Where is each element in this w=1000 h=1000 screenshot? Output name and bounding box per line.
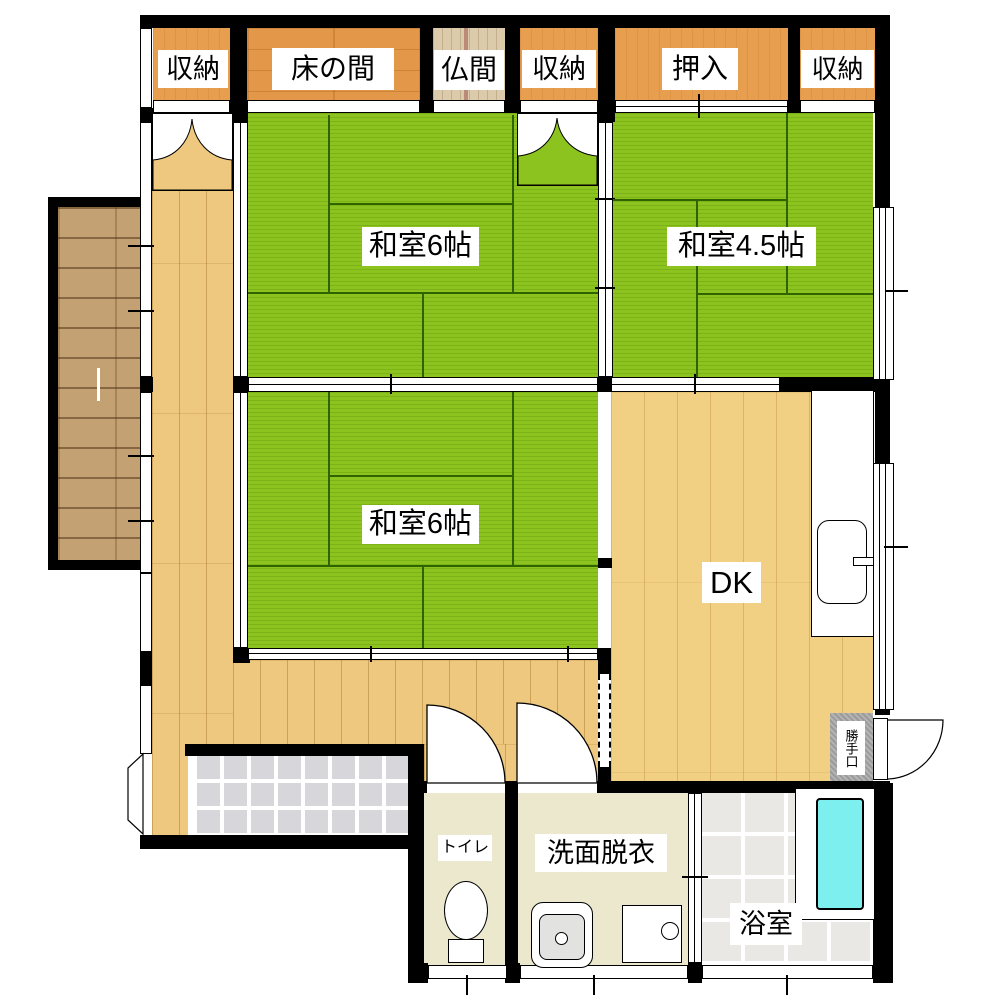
matline	[422, 292, 424, 377]
post-left-lower	[140, 652, 152, 685]
window-right-kitchen-line1	[879, 463, 880, 710]
label-washitsu45: 和室4.5帖	[667, 227, 816, 266]
shoji-tick-room3-b	[567, 646, 569, 662]
label-closet-butsuma: 仏間	[434, 50, 504, 90]
closet-track-5-line	[615, 106, 788, 107]
post-bottom-3	[688, 963, 702, 983]
genkan-tile-floor	[197, 756, 417, 835]
double-door-engawa-icon	[152, 113, 233, 191]
label-closet-shuno-2: 収納	[522, 50, 596, 88]
matline	[328, 392, 330, 567]
post-closet-3	[505, 28, 520, 113]
post-washbath-top	[688, 781, 702, 793]
bath-sliding-door-tick	[682, 876, 708, 878]
closet-track-3	[433, 100, 505, 113]
washing-machine-dial-icon	[661, 922, 679, 940]
label-toilet: トイレ	[438, 835, 492, 861]
deck-frame-top	[48, 197, 140, 207]
deck-dim-mark	[97, 368, 100, 401]
window-left-2	[140, 122, 152, 377]
wall-toilet-washroom-divider	[505, 781, 518, 973]
shoji-line-room1-left	[240, 122, 241, 377]
deck-frame-left	[48, 197, 58, 570]
post-closet-4	[598, 28, 615, 122]
post-bottom-4	[873, 963, 893, 983]
matline	[512, 392, 514, 567]
double-door-room1-icon	[517, 113, 598, 186]
fusuma-tick-room1-room3	[390, 374, 392, 394]
window-bottom-bath-tick	[786, 975, 788, 995]
bath-sliding-door-line	[694, 793, 695, 963]
window-right-room2-tick	[886, 290, 908, 292]
matline	[512, 115, 514, 292]
window-right-kitchen	[873, 463, 894, 710]
wall-bath-right	[873, 783, 893, 979]
post-bottom-2	[505, 963, 520, 983]
genkan-step-line	[188, 756, 197, 835]
wall-right-mid	[875, 380, 890, 465]
label-closet-shuno-1: 収納	[158, 50, 228, 88]
post-closet-2	[420, 28, 433, 113]
engawa-corridor-left	[152, 113, 233, 835]
label-closet-tokonoma: 床の間	[272, 48, 394, 90]
dim-tick-left-3	[128, 455, 154, 457]
door-swing-backdoor-icon	[873, 712, 951, 784]
wall-top	[140, 15, 890, 28]
shoji-line-room3-bottom	[248, 653, 598, 654]
window-right-room2	[873, 207, 894, 380]
toilet-bowl-icon	[444, 881, 488, 940]
label-backdoor: 勝手口	[837, 721, 865, 775]
fusuma-tick-room2-dk	[694, 374, 696, 394]
wall-genkan-top	[185, 744, 417, 756]
window-left-5	[140, 685, 152, 754]
closet-track-4	[520, 100, 598, 113]
post-track-h	[598, 648, 611, 663]
shoji-track-room3-bottom	[248, 648, 598, 660]
toilet-tank-icon	[448, 939, 484, 963]
label-bath: 浴室	[730, 903, 802, 945]
window-left-4	[140, 573, 152, 652]
matline	[696, 199, 698, 377]
matline	[328, 203, 514, 205]
dim-tick-left-1	[128, 245, 154, 247]
window-bottom-washroom-tick	[593, 975, 595, 995]
matline	[786, 113, 788, 295]
matline	[696, 293, 873, 295]
window-bottom-toilet-tick	[466, 975, 468, 995]
shoji-tick-room3-a	[370, 646, 372, 662]
entrance-door-bay-icon	[125, 752, 145, 836]
shoji-line-room3-left	[240, 392, 241, 648]
bathtub-icon	[816, 798, 864, 910]
fusuma-tick-b	[595, 287, 615, 289]
closet-track-1	[153, 100, 230, 113]
wall-toilet-left	[408, 744, 424, 974]
post-track-g	[598, 558, 612, 568]
fusuma-line-room1-room3	[248, 384, 598, 385]
window-left-1	[140, 28, 152, 108]
post-bottom-1	[408, 963, 428, 983]
label-closet-shuno-3: 収納	[801, 50, 874, 88]
post-track-a	[233, 108, 248, 122]
door-swing-toilet-icon	[424, 701, 508, 785]
window-right-room2-line1	[879, 207, 880, 380]
wall-genkan-bottom	[140, 835, 417, 849]
label-washitsu6-bottom: 和室6帖	[362, 505, 479, 544]
window-left-3	[140, 392, 152, 573]
matline	[328, 475, 514, 477]
kitchen-faucet-icon	[853, 557, 874, 566]
fusuma-line-room1-room2	[605, 122, 606, 377]
label-washroom: 洗面脱衣	[535, 834, 667, 872]
label-dk: DK	[702, 562, 761, 603]
bath-sliding-door	[688, 793, 702, 963]
wall-right-upper	[875, 28, 890, 208]
label-closet-oshiire: 押入	[662, 48, 738, 90]
washbasin-drain-icon	[555, 932, 568, 945]
closet-track-6	[800, 100, 875, 113]
matline	[422, 565, 424, 648]
window-right-room2-line2	[885, 207, 886, 380]
post-closet-1	[230, 28, 247, 113]
closet-track-2	[247, 100, 420, 113]
matline	[613, 199, 788, 201]
post-closet-5	[788, 28, 800, 113]
window-right-kitchen-line2	[885, 463, 886, 710]
post-left-mid	[140, 377, 153, 392]
dim-tick-left-2	[128, 310, 154, 312]
floor-plan: 収納 床の間 仏間 収納 押入 収納 和室6帖 和室4.5帖 和室6帖 DK ト…	[0, 0, 1000, 1000]
label-washitsu6-top: 和室6帖	[362, 227, 479, 266]
fusuma-tick-a	[595, 198, 615, 200]
closet-track-5-tick	[698, 94, 700, 118]
door-swing-washroom-icon	[514, 701, 600, 785]
dim-tick-left-4	[128, 520, 154, 522]
window-right-kitchen-tick	[884, 546, 908, 548]
deck-frame-bottom	[48, 560, 140, 570]
